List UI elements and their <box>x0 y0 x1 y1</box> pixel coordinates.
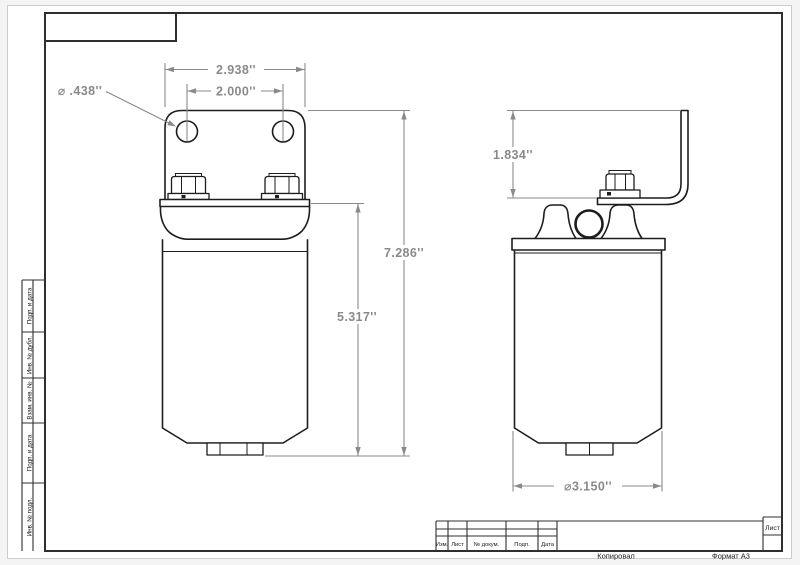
strip-cell-label: Инв. № подл. <box>27 497 34 536</box>
dim-text-hole-spacing: 2.000'' <box>216 85 256 99</box>
dim-text-overall-height: 7.286'' <box>384 246 424 260</box>
mounting-bolt-right <box>262 174 303 200</box>
title-block-col-dokum: № докум. <box>474 542 500 548</box>
strip-cell-label: Инв. № дубл. <box>27 336 34 375</box>
format-label: Формат А3 <box>712 552 750 561</box>
bottom-fitting-front <box>207 443 263 455</box>
strip-cell-label: Взам. инв. № <box>27 381 34 420</box>
bottom-fitting-side <box>566 443 613 455</box>
filter-top-plate <box>160 200 310 207</box>
filter-flange-side <box>512 239 665 251</box>
title-block-col-izm: Изм. <box>436 542 449 548</box>
dim-text-bracket-width: 2.938'' <box>216 63 256 77</box>
mounting-bolt-side <box>600 171 640 199</box>
title-block-col-list: Лист <box>451 542 464 548</box>
sheet-number-label: Лист <box>765 525 780 532</box>
dim-text-body-height: 5.317'' <box>337 310 377 324</box>
paper <box>8 6 792 559</box>
inlet-port <box>576 211 603 238</box>
strip-cell-label: Подп. и дата <box>27 287 34 324</box>
copied-label: Копировал <box>597 552 635 561</box>
drawing-sheet: Подп. и дата Инв. № дубл. Взам. инв. № П… <box>0 0 800 565</box>
title-block-col-data: Дата <box>541 542 555 548</box>
strip-cell-label: Подп. и дата <box>27 434 34 471</box>
sheet-frame: Подп. и дата Инв. № дубл. Взам. инв. № П… <box>8 6 792 561</box>
mounting-bolt-left <box>168 174 209 200</box>
title-block-col-podp: Подп. <box>514 542 530 548</box>
dim-text-hole-diameter: ⌀ .438'' <box>58 84 102 98</box>
dim-text-body-diameter: ⌀3.150'' <box>564 480 612 494</box>
dim-text-bracket-height: 1.834'' <box>493 148 533 162</box>
